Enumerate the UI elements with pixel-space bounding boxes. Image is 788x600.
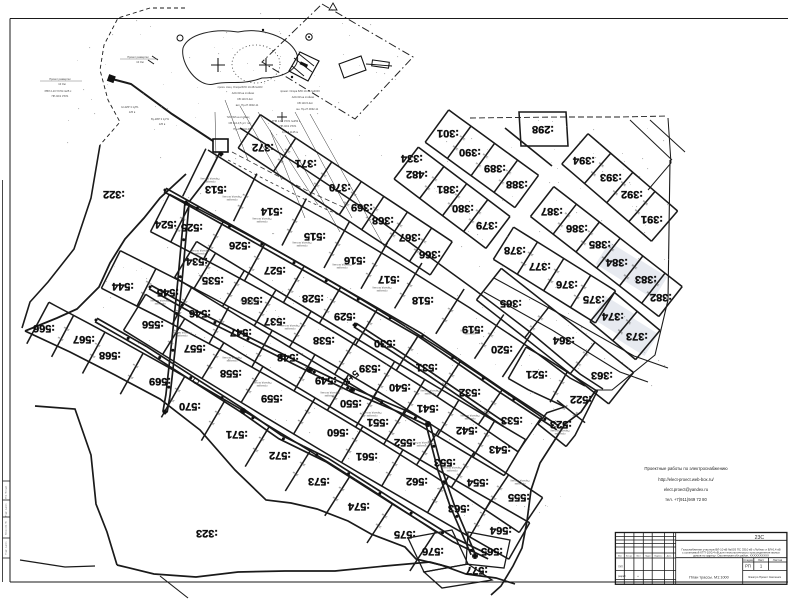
- svg-text:Переход №1 над: Переход №1 над: [412, 441, 431, 444]
- svg-text::572: :572: [269, 449, 291, 461]
- svg-text:тел. +7(911)949 72 80: тел. +7(911)949 72 80: [665, 497, 707, 502]
- svg-text::531: :531: [416, 361, 438, 373]
- svg-text::523: :523: [550, 418, 572, 430]
- svg-text::513: :513: [205, 183, 227, 195]
- svg-text::567: :567: [73, 333, 95, 345]
- svg-text:Переход №1 над: Переход №1 над: [172, 331, 191, 334]
- svg-text::363: :363: [591, 369, 613, 381]
- svg-text:РВЛ 2-10 УХЛ1 №25 с: РВЛ 2-10 УХЛ1 №25 с: [45, 89, 72, 93]
- svg-text::322: :322: [103, 188, 125, 200]
- svg-text:План трассы. М1:1000: План трассы. М1:1000: [689, 576, 729, 580]
- svg-text::369: :369: [351, 201, 373, 213]
- svg-text:Ы-2ИР 3 1уП1: Ы-2ИР 3 1уП1: [121, 105, 139, 109]
- svg-text:ГИП: ГИП: [618, 566, 623, 568]
- svg-text:А20-3И на стойках: А20-3И на стойках: [292, 95, 315, 99]
- svg-text:проездом: проездом: [226, 359, 237, 362]
- svg-text::557: :557: [184, 342, 206, 354]
- svg-text:РП: РП: [745, 564, 751, 569]
- svg-text::517: :517: [378, 273, 400, 285]
- svg-text:домов по адресу: Смоленская об: домов по адресу: Смоленская обл.район, Х…: [693, 554, 769, 558]
- svg-text:проездом: проездом: [296, 244, 307, 247]
- svg-text:Лист: Лист: [758, 558, 765, 562]
- svg-text:проездом: проездом: [194, 252, 205, 255]
- svg-text:Листов: Листов: [773, 558, 783, 562]
- svg-text::562: :562: [406, 475, 428, 487]
- svg-text::301: :301: [437, 127, 459, 139]
- svg-text::371: :371: [295, 157, 317, 169]
- svg-text:проездом: проездом: [366, 414, 377, 417]
- svg-text:+: +: [637, 574, 639, 578]
- svg-text:№док: №док: [645, 555, 650, 558]
- svg-text::554: :554: [466, 476, 489, 488]
- svg-text::382: :382: [650, 291, 672, 303]
- svg-text:Проект развертки: Проект развертки: [127, 55, 149, 59]
- svg-text:СВ 110-5-2кл: СВ 110-5-2кл: [297, 101, 313, 105]
- svg-text::384: :384: [605, 256, 628, 268]
- svg-text::561: :561: [356, 450, 378, 462]
- svg-text::515: :515: [304, 230, 326, 242]
- svg-text:Подп. и дата: Подп. и дата: [6, 541, 8, 555]
- svg-text::524: :524: [154, 218, 177, 230]
- svg-text::574: :574: [347, 500, 370, 512]
- svg-text::547: :547: [230, 326, 252, 338]
- svg-text::527: :527: [264, 264, 286, 276]
- svg-text::520: :520: [491, 343, 513, 355]
- svg-text:Переход №1 над: Переход №1 над: [200, 177, 219, 180]
- svg-text::368: :368: [372, 214, 394, 226]
- svg-text:Переход №1 над: Переход №1 над: [320, 391, 339, 394]
- svg-text:Переход №1 над: Переход №1 над: [510, 479, 529, 482]
- svg-text::563: :563: [448, 502, 470, 514]
- svg-text:Бу-2ИР 3 1уП1: Бу-2ИР 3 1уП1: [151, 117, 169, 121]
- svg-text::538: :538: [313, 334, 335, 346]
- svg-text::392: :392: [621, 188, 643, 200]
- svg-text::378: :378: [504, 244, 526, 256]
- svg-text:проездом: проездом: [226, 198, 237, 201]
- svg-text::526: :526: [229, 239, 251, 251]
- svg-text::334: :334: [400, 152, 423, 164]
- svg-text::380: :380: [452, 202, 474, 214]
- svg-text::565: :565: [481, 545, 503, 557]
- svg-text:720 ОМ на стойках: 720 ОМ на стойках: [227, 115, 251, 119]
- svg-text:разраб: разраб: [618, 576, 626, 578]
- svg-text::534: :534: [185, 255, 208, 267]
- svg-text:Переход №1 над: Переход №1 над: [252, 381, 271, 384]
- svg-text::558: :558: [220, 367, 242, 379]
- svg-text::543: :543: [489, 443, 511, 455]
- svg-text:проездом: проездом: [324, 394, 335, 397]
- svg-text:ПР-02/1 УХЛ1: ПР-02/1 УХЛ1: [52, 94, 69, 98]
- svg-text:РПБ 2-10 УХЛ1 №253 с: РПБ 2-10 УХЛ1 №253 с: [272, 119, 301, 123]
- svg-text:elect.proect@yandex.ru: elect.proect@yandex.ru: [664, 487, 709, 492]
- svg-text:проездом: проездом: [424, 392, 435, 395]
- svg-text::522: :522: [570, 393, 592, 405]
- svg-text::546: :546: [189, 307, 211, 319]
- svg-text::367: :367: [399, 231, 421, 243]
- svg-text::545: :545: [157, 286, 179, 298]
- svg-text::323: :323: [196, 527, 218, 539]
- svg-text:проездом: проездом: [554, 432, 565, 435]
- svg-text::394: :394: [572, 154, 595, 166]
- svg-text:Лист: Лист: [636, 556, 640, 558]
- svg-text::514: :514: [260, 205, 283, 217]
- svg-text:125 в: 125 в: [159, 122, 166, 126]
- svg-text::373: :373: [626, 330, 648, 342]
- svg-text::389: :389: [484, 162, 506, 174]
- svg-text::386: :386: [566, 222, 588, 234]
- svg-text:http://elect-proect.web-box.ru: http://elect-proect.web-box.ru/: [658, 477, 714, 482]
- svg-text:проездом: проездом: [336, 266, 347, 269]
- svg-text:проездом: проездом: [464, 332, 475, 335]
- svg-text::573: :573: [308, 475, 330, 487]
- svg-text::535: :535: [202, 274, 224, 286]
- svg-text::542: :542: [456, 424, 478, 436]
- svg-text:ПР-02/1 УХЛ1: ПР-02/1 УХЛ1: [280, 124, 297, 128]
- svg-text::482: :482: [406, 168, 428, 180]
- svg-text:проездом: проездом: [256, 384, 267, 387]
- svg-text::377: :377: [529, 260, 551, 272]
- svg-text::530: :530: [374, 337, 396, 349]
- svg-text::570: :570: [179, 400, 201, 412]
- svg-text:Переход №1 над: Переход №1 над: [292, 241, 311, 244]
- svg-text::374: :374: [601, 310, 624, 322]
- svg-text::541: :541: [417, 402, 439, 414]
- svg-text::556: :556: [142, 318, 164, 330]
- svg-text::564: :564: [489, 524, 512, 536]
- svg-text::566: :566: [33, 322, 55, 334]
- svg-text::575: :575: [394, 528, 416, 540]
- svg-text:Проект развертки: Проект развертки: [49, 77, 71, 81]
- svg-text:Подп. и дата: Подп. и дата: [6, 503, 8, 517]
- svg-text:Переход №1 над: Переход №1 над: [460, 329, 479, 332]
- svg-text::539: :539: [359, 362, 381, 374]
- svg-text:Кол.уч: Кол.уч: [626, 556, 632, 558]
- svg-text:Переход №1 над: Переход №1 над: [222, 195, 241, 198]
- svg-text:Переход №1 над: Переход №1 над: [240, 299, 259, 302]
- svg-text:СВ 110-3,5 уст тип.: СВ 110-3,5 уст тип.: [229, 121, 252, 125]
- svg-text::533: :533: [501, 414, 523, 426]
- svg-text:Инв. № подл.: Инв. № подл.: [5, 485, 8, 499]
- svg-text:Проектные работы по электросна: Проектные работы по электроснабжению: [644, 466, 728, 471]
- svg-text:ген. Пр-27.0032-11: ген. Пр-27.0032-11: [296, 107, 319, 111]
- svg-text:проект. Опора БЛ0 10-4Б №4633: проект. Опора БЛ0 10-4Б №4633: [280, 89, 320, 93]
- svg-text:23С: 23С: [755, 535, 765, 541]
- svg-text:Переход №1 над: Переход №1 над: [150, 299, 169, 302]
- svg-text:Переход №1 над: Переход №1 над: [280, 324, 299, 327]
- svg-text:Переход №1 над: Переход №1 над: [372, 286, 391, 289]
- svg-text:проездом: проездом: [204, 180, 215, 183]
- svg-text::518: :518: [412, 294, 434, 306]
- svg-text::521: :521: [526, 368, 548, 380]
- svg-text::390: :390: [459, 146, 481, 158]
- svg-text::376: :376: [556, 278, 578, 290]
- svg-text::528: :528: [302, 292, 324, 304]
- svg-text:Переход №1 над: Переход №1 над: [460, 414, 479, 417]
- svg-text::560: :560: [327, 426, 349, 438]
- svg-text::529: :529: [334, 310, 356, 322]
- svg-text:проездом: проездом: [284, 327, 295, 330]
- svg-text:проездом: проездом: [376, 289, 387, 292]
- svg-text:проездом: проездом: [514, 482, 525, 485]
- svg-text:проездом: проездом: [446, 469, 457, 472]
- svg-text::571: :571: [226, 428, 248, 440]
- svg-text::549: :549: [315, 374, 337, 386]
- svg-text:Электро Проект Смоленск: Электро Проект Смоленск: [748, 575, 782, 579]
- svg-text::391: :391: [641, 213, 663, 225]
- svg-text::555: :555: [508, 491, 530, 503]
- svg-text:Переход №1 над: Переход №1 над: [222, 356, 241, 359]
- svg-text:Переход №1 над: Переход №1 над: [420, 389, 439, 392]
- svg-text::381: :381: [437, 183, 459, 195]
- svg-text::548: :548: [277, 351, 299, 363]
- svg-text::366: :366: [419, 248, 441, 260]
- svg-text:Взам. инв. №: Взам. инв. №: [5, 521, 8, 535]
- svg-text:Переход №1 над: Переход №1 над: [362, 411, 381, 414]
- svg-text:проездом: проездом: [154, 302, 165, 305]
- svg-text::559: :559: [261, 392, 283, 404]
- svg-text:Подпись: Подпись: [654, 556, 662, 558]
- svg-text:Переход №1 над: Переход №1 над: [190, 249, 209, 252]
- svg-text:Стадия: Стадия: [743, 558, 753, 562]
- svg-text:10 Ом: 10 Ом: [58, 82, 66, 86]
- svg-text:А20-3И на стойках: А20-3И на стойках: [232, 91, 255, 95]
- svg-text:вкл. Пр-27.0032-11: вкл. Пр-27.0032-11: [236, 103, 259, 107]
- svg-text::372: :372: [252, 141, 274, 153]
- svg-text:Переход №1 над: Переход №1 над: [252, 217, 271, 220]
- svg-text::298: :298: [532, 123, 554, 135]
- svg-text::532: :532: [459, 386, 481, 398]
- svg-text::370: :370: [329, 181, 351, 193]
- svg-text::393: :393: [600, 171, 622, 183]
- svg-text:проездом: проездом: [256, 220, 267, 223]
- svg-text::387: :387: [541, 205, 563, 217]
- svg-text::525: :525: [181, 221, 203, 233]
- svg-text:125 в: 125 в: [129, 110, 136, 114]
- svg-text:произ. спец. Опора БЛО 10-4Б №: произ. спец. Опора БЛО 10-4Б №463: [218, 85, 263, 89]
- svg-text::544: :544: [111, 280, 134, 292]
- svg-text:10 Ом: 10 Ом: [136, 60, 144, 64]
- svg-text::569: :569: [149, 375, 171, 387]
- svg-text:проездом: проездом: [244, 302, 255, 305]
- svg-text::375: :375: [583, 293, 605, 305]
- svg-text::364: :364: [552, 334, 575, 346]
- svg-text:Переход №1 над: Переход №1 над: [442, 466, 461, 469]
- svg-text::388: :388: [506, 178, 528, 190]
- svg-text:СВ 110-5-2кл: СВ 110-5-2кл: [237, 97, 253, 101]
- svg-text:проездом: проездом: [464, 417, 475, 420]
- svg-text:Переход №1 над: Переход №1 над: [332, 263, 351, 266]
- svg-text::385: :385: [589, 238, 611, 250]
- svg-text:Переход №1 над: Переход №1 над: [550, 429, 569, 432]
- svg-text:проездом: проездом: [176, 334, 187, 337]
- svg-text::383: :383: [635, 273, 657, 285]
- svg-text:Изм: Изм: [618, 556, 622, 558]
- svg-text::568: :568: [99, 349, 121, 361]
- svg-text::576: :576: [422, 545, 444, 557]
